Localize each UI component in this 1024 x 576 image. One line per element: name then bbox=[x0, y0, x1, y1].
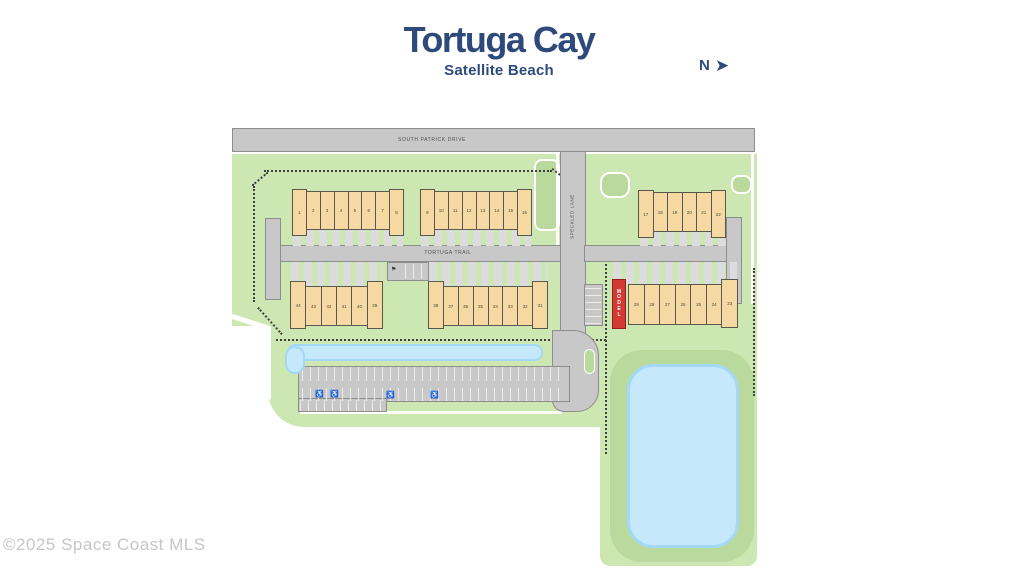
unit-lot: 38 bbox=[428, 281, 444, 329]
boundary-line bbox=[253, 186, 255, 302]
unit-lot: 10 bbox=[434, 191, 449, 230]
unit-lot: 37 bbox=[443, 286, 459, 326]
unit-lot: 42 bbox=[321, 286, 337, 326]
unit-lot: 31 bbox=[532, 281, 548, 329]
building-row-1-8: 1 2 3 4 5 6 7 8 bbox=[292, 191, 404, 230]
unit-lot: 39 bbox=[367, 281, 383, 329]
unit-lot: 13 bbox=[476, 191, 491, 230]
unit-lot: 28 bbox=[644, 284, 661, 325]
unit-lot: 14 bbox=[489, 191, 504, 230]
road-label-south-patrick: SOUTH PATRICK DRIVE bbox=[232, 137, 632, 143]
building-row-9-16: 9 10 11 12 13 14 15 16 bbox=[420, 191, 532, 230]
canal bbox=[287, 344, 543, 361]
building-row-model-23-29: MODEL 29 28 27 26 25 24 23 bbox=[612, 284, 738, 325]
boundary-line bbox=[753, 268, 755, 396]
kiosk-stalls bbox=[405, 264, 427, 279]
unit-lot: 5 bbox=[348, 191, 363, 230]
unit-lot: 21 bbox=[696, 192, 712, 232]
unit-lot: 22 bbox=[711, 190, 727, 238]
unit-lot: 32 bbox=[517, 286, 533, 326]
sidewalk bbox=[556, 154, 559, 245]
landscape-island bbox=[731, 175, 752, 194]
driveways bbox=[293, 230, 403, 246]
unit-lot: 43 bbox=[305, 286, 321, 326]
building-row-17-22: 17 18 19 20 21 22 bbox=[638, 192, 726, 232]
driveways bbox=[421, 230, 531, 246]
unit-lot: 35 bbox=[473, 286, 489, 326]
boundary-line bbox=[264, 170, 552, 172]
road-label-tortuga-trail: TORTUGA TRAIL bbox=[388, 250, 508, 256]
unit-lot: 12 bbox=[462, 191, 477, 230]
unit-lot: 24 bbox=[706, 284, 723, 325]
unit-lot: 7 bbox=[375, 191, 390, 230]
unit-lot: 8 bbox=[389, 189, 404, 236]
lane-parking-stalls bbox=[585, 286, 601, 324]
handicap-icon: ♿ bbox=[315, 391, 324, 398]
canal-basin bbox=[285, 346, 305, 374]
unit-lot: 2 bbox=[306, 191, 321, 230]
building-row-39-44: 44 43 42 41 40 39 bbox=[290, 286, 383, 326]
unit-lot: 9 bbox=[420, 189, 435, 236]
driveways bbox=[613, 262, 737, 284]
handicap-icon: ♿ bbox=[430, 392, 439, 399]
unit-lot: 6 bbox=[361, 191, 376, 230]
road-median-island bbox=[584, 349, 595, 374]
unit-lot: 23 bbox=[721, 279, 738, 328]
sidewalk bbox=[266, 328, 271, 400]
unit-lot: 11 bbox=[448, 191, 463, 230]
kiosk-icon: ⚑ bbox=[391, 267, 396, 273]
unit-lot: 4 bbox=[334, 191, 349, 230]
road-tortuga-trail-east bbox=[584, 245, 738, 262]
unit-lot: 44 bbox=[290, 281, 306, 329]
unit-lot: 40 bbox=[351, 286, 367, 326]
unit-lot: 16 bbox=[517, 189, 532, 236]
unit-lot: 34 bbox=[488, 286, 504, 326]
unit-lot: 18 bbox=[653, 192, 669, 232]
unit-lot: 29 bbox=[628, 284, 645, 325]
unit-lot: 15 bbox=[503, 191, 518, 230]
unit-lot: 20 bbox=[682, 192, 698, 232]
road-hammerhead-west bbox=[265, 218, 281, 300]
handicap-icon: ♿ bbox=[386, 392, 395, 399]
unit-lot: 41 bbox=[336, 286, 352, 326]
site-plan: SOUTH PATRICK DRIVE ♿ ♿ ♿ ♿ ⚑ bbox=[0, 0, 1024, 576]
unit-lot: 19 bbox=[667, 192, 683, 232]
unit-lot: 26 bbox=[675, 284, 692, 325]
parking-stalls bbox=[300, 400, 385, 411]
model-unit-label: MODEL bbox=[616, 290, 622, 319]
model-unit: MODEL bbox=[612, 279, 626, 329]
handicap-icon: ♿ bbox=[330, 391, 339, 398]
unit-lot: 27 bbox=[659, 284, 676, 325]
unit-lot: 17 bbox=[638, 190, 654, 238]
unit-lot: 3 bbox=[320, 191, 335, 230]
unit-lot: 25 bbox=[690, 284, 707, 325]
landscape-island bbox=[600, 172, 630, 198]
driveways bbox=[429, 262, 548, 286]
unit-lot: 1 bbox=[292, 189, 307, 236]
boundary-line bbox=[605, 264, 607, 454]
pond bbox=[627, 364, 739, 548]
parking-stalls bbox=[302, 367, 566, 381]
road-label-speckled-lane: SPECKLED LANE bbox=[570, 187, 575, 247]
unit-lot: 36 bbox=[458, 286, 474, 326]
site-plan-page: Tortuga Cay Satellite Beach N ➤ bbox=[0, 0, 1024, 576]
building-row-31-38: 38 37 36 35 34 33 32 31 bbox=[428, 286, 548, 326]
copyright-watermark: ©2025 Space Coast MLS bbox=[3, 535, 206, 555]
unit-lot: 33 bbox=[502, 286, 518, 326]
